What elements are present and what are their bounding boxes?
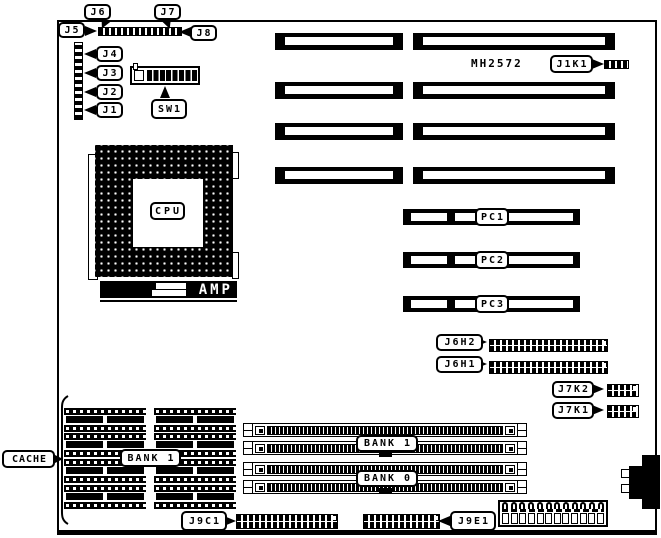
label-j1k1: J1K1 <box>550 55 593 73</box>
pointer-j2 <box>84 87 96 97</box>
label-j7k2: J7K2 <box>552 381 594 398</box>
label-j2: J2 <box>96 84 123 100</box>
pointer-j9e1 <box>438 516 450 526</box>
label-cache-bank1: BANK 1 <box>120 449 181 467</box>
isa-slot-2-right <box>413 82 615 99</box>
power-connector <box>498 500 608 527</box>
label-j6: J6 <box>84 4 111 20</box>
isa-slot-3-right <box>413 123 615 140</box>
pointer-sw1 <box>160 86 170 98</box>
label-bank0: BANK 0 <box>356 470 418 487</box>
label-j1: J1 <box>96 102 123 118</box>
socket-clip-bottom <box>232 252 239 279</box>
isa-slot-2-left <box>275 82 403 99</box>
keyboard-connector-body <box>629 466 660 499</box>
label-bank1: BANK 1 <box>356 435 418 452</box>
isa-slot-4-left <box>275 167 403 184</box>
isa-slot-1-right <box>413 33 615 50</box>
pointer-j4 <box>84 49 96 59</box>
amp-brand-text: AMP <box>199 281 233 298</box>
simm-center-tab <box>379 488 392 494</box>
label-j9e1: J9E1 <box>450 511 496 531</box>
label-j6h1: J6H1 <box>436 356 483 373</box>
power-tabs <box>500 502 606 509</box>
cache-chip <box>154 485 236 509</box>
label-j9c1: J9C1 <box>181 511 227 531</box>
pointer-j5 <box>85 26 97 36</box>
label-j7k1: J7K1 <box>552 402 594 419</box>
pin-header-j9c1 <box>236 514 338 529</box>
label-cpu: CPU <box>150 202 185 220</box>
pin-header-j6h2 <box>489 339 608 352</box>
amp-bar-slot1 <box>156 283 186 289</box>
pointer-j1 <box>84 105 96 115</box>
socket-clip-top <box>232 152 239 179</box>
label-j7: J7 <box>154 4 181 20</box>
jumper-j1k1 <box>604 60 629 69</box>
motherboard-diagram: J6 J7 J5 J8 J4 J3 J2 J1 SW1 CPU AMP MH25… <box>0 0 661 538</box>
label-j6h2: J6H2 <box>436 334 483 351</box>
label-j3: J3 <box>96 65 123 81</box>
cache-chip <box>64 485 146 509</box>
pin-header-j6h1 <box>489 361 608 374</box>
dip-cell-off <box>134 70 144 81</box>
pin-header-j7k1 <box>607 405 639 418</box>
dip-pin1-marker <box>133 63 138 70</box>
pin-header-j7k2 <box>607 384 639 397</box>
power-pins <box>500 512 606 525</box>
cache-chip <box>154 408 236 432</box>
keyboard-connector-bottom <box>642 498 660 509</box>
dip-switch-sw1 <box>130 66 200 85</box>
keyboard-connector-notch <box>621 484 630 493</box>
jumper-strip-left <box>74 42 83 120</box>
label-pc3: PC3 <box>475 295 509 313</box>
isa-slot-4-right <box>413 167 615 184</box>
dip-cells <box>147 70 198 81</box>
isa-slot-3-left <box>275 123 403 140</box>
amp-retention-bar: AMP <box>100 281 237 298</box>
chipset-text-mh2572: MH2572 <box>471 57 523 70</box>
pin-header-j9e1 <box>363 514 440 529</box>
keyboard-connector-notch <box>621 469 630 478</box>
cache-chip <box>64 408 146 432</box>
label-j5: J5 <box>58 22 85 38</box>
isa-slot-1-left <box>275 33 403 50</box>
pointer-j1k1 <box>592 59 604 69</box>
label-sw1: SW1 <box>151 99 187 119</box>
label-cache: CACHE <box>2 450 55 468</box>
label-pc2: PC2 <box>475 251 509 269</box>
amp-bar-slot2 <box>152 290 186 296</box>
label-j8: J8 <box>190 25 217 41</box>
label-j4: J4 <box>96 46 123 62</box>
pointer-j3 <box>84 68 96 78</box>
label-pc1: PC1 <box>475 208 509 226</box>
amp-bar-base <box>100 300 237 302</box>
